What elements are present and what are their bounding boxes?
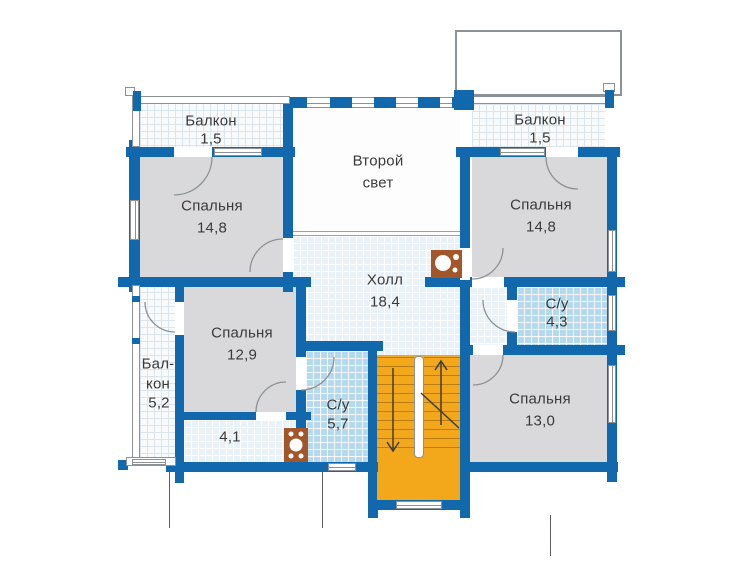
wall-stub xyxy=(460,510,470,518)
door-opening xyxy=(296,357,306,390)
wall xyxy=(368,341,377,510)
balcony-railing xyxy=(137,96,290,104)
room-balcony-left xyxy=(140,285,175,460)
room-area: 18,4 xyxy=(370,294,400,311)
room-area: 14,8 xyxy=(526,219,556,236)
window xyxy=(132,459,166,465)
room-label: Спальня xyxy=(509,391,571,408)
room-label: Балкон xyxy=(185,113,237,130)
window xyxy=(396,501,442,509)
window xyxy=(130,200,139,240)
stair-landing xyxy=(377,462,460,500)
room-label: Спальня xyxy=(181,198,243,215)
wall xyxy=(330,97,352,108)
room-label: С/у xyxy=(545,296,568,313)
railing-post xyxy=(605,90,614,108)
window xyxy=(608,365,616,423)
room-area: 14,8 xyxy=(197,220,227,237)
room-label: Холл xyxy=(367,272,403,289)
roof-edge-line xyxy=(169,472,170,528)
balcony-railing xyxy=(473,96,613,104)
wall xyxy=(175,412,311,420)
window xyxy=(608,230,616,272)
room-label: свет xyxy=(363,175,394,192)
room-label: Бал- xyxy=(142,356,175,373)
window xyxy=(500,148,545,156)
room-label: Второй xyxy=(353,153,404,170)
railing-post xyxy=(133,91,141,111)
roof-edge-line xyxy=(550,515,551,556)
door-opening xyxy=(546,147,578,157)
stair-center-rail xyxy=(414,356,424,458)
door-opening xyxy=(174,147,212,157)
railing-post xyxy=(454,90,474,110)
room-label: Балкон xyxy=(514,112,566,129)
window xyxy=(608,295,616,331)
window xyxy=(328,463,356,471)
door-opening xyxy=(472,277,504,287)
room-bedroom-top-right xyxy=(472,157,607,277)
room-area: 1,5 xyxy=(200,131,221,148)
door-opening xyxy=(473,345,503,355)
balcony-railing xyxy=(132,285,140,462)
open-edge-divider xyxy=(293,231,460,236)
wall-stub xyxy=(368,510,378,518)
wall xyxy=(460,462,618,472)
door-opening xyxy=(283,238,293,272)
room-label: С/у xyxy=(326,397,349,414)
room-label: кон xyxy=(146,376,170,393)
room-bedroom-top-left xyxy=(140,157,283,277)
wall xyxy=(460,147,470,472)
room-second-light xyxy=(293,108,460,231)
room-area: 4,1 xyxy=(219,429,240,446)
wall xyxy=(374,97,396,108)
wall xyxy=(425,277,625,287)
room-area: 13,0 xyxy=(525,413,555,430)
door-opening xyxy=(175,302,184,335)
floor-plan: Балкон 1,5 Спальня 14,8 Второй свет Балк… xyxy=(0,0,750,563)
wall xyxy=(118,277,311,287)
room-label: Спальня xyxy=(211,325,273,342)
door-opening xyxy=(256,412,286,420)
roof-edge-line xyxy=(322,472,323,528)
room-area: 4,3 xyxy=(546,314,567,331)
room-vestibule xyxy=(470,287,507,345)
door-opening xyxy=(507,300,517,332)
roof-outline xyxy=(455,30,622,96)
window xyxy=(214,148,262,156)
room-area: 12,9 xyxy=(227,347,257,364)
room-label: Спальня xyxy=(510,197,572,214)
room-area: 1,5 xyxy=(529,130,550,147)
railing-post xyxy=(132,338,140,344)
room-bedroom-bottom-right xyxy=(470,355,607,462)
stair-flight-down xyxy=(377,357,414,456)
room-area: 5,2 xyxy=(148,395,169,412)
room-area: 5,7 xyxy=(327,416,348,433)
stair-flight-up xyxy=(424,357,460,456)
railing-post xyxy=(132,296,140,302)
door-opening xyxy=(460,248,470,280)
wall xyxy=(418,97,440,108)
